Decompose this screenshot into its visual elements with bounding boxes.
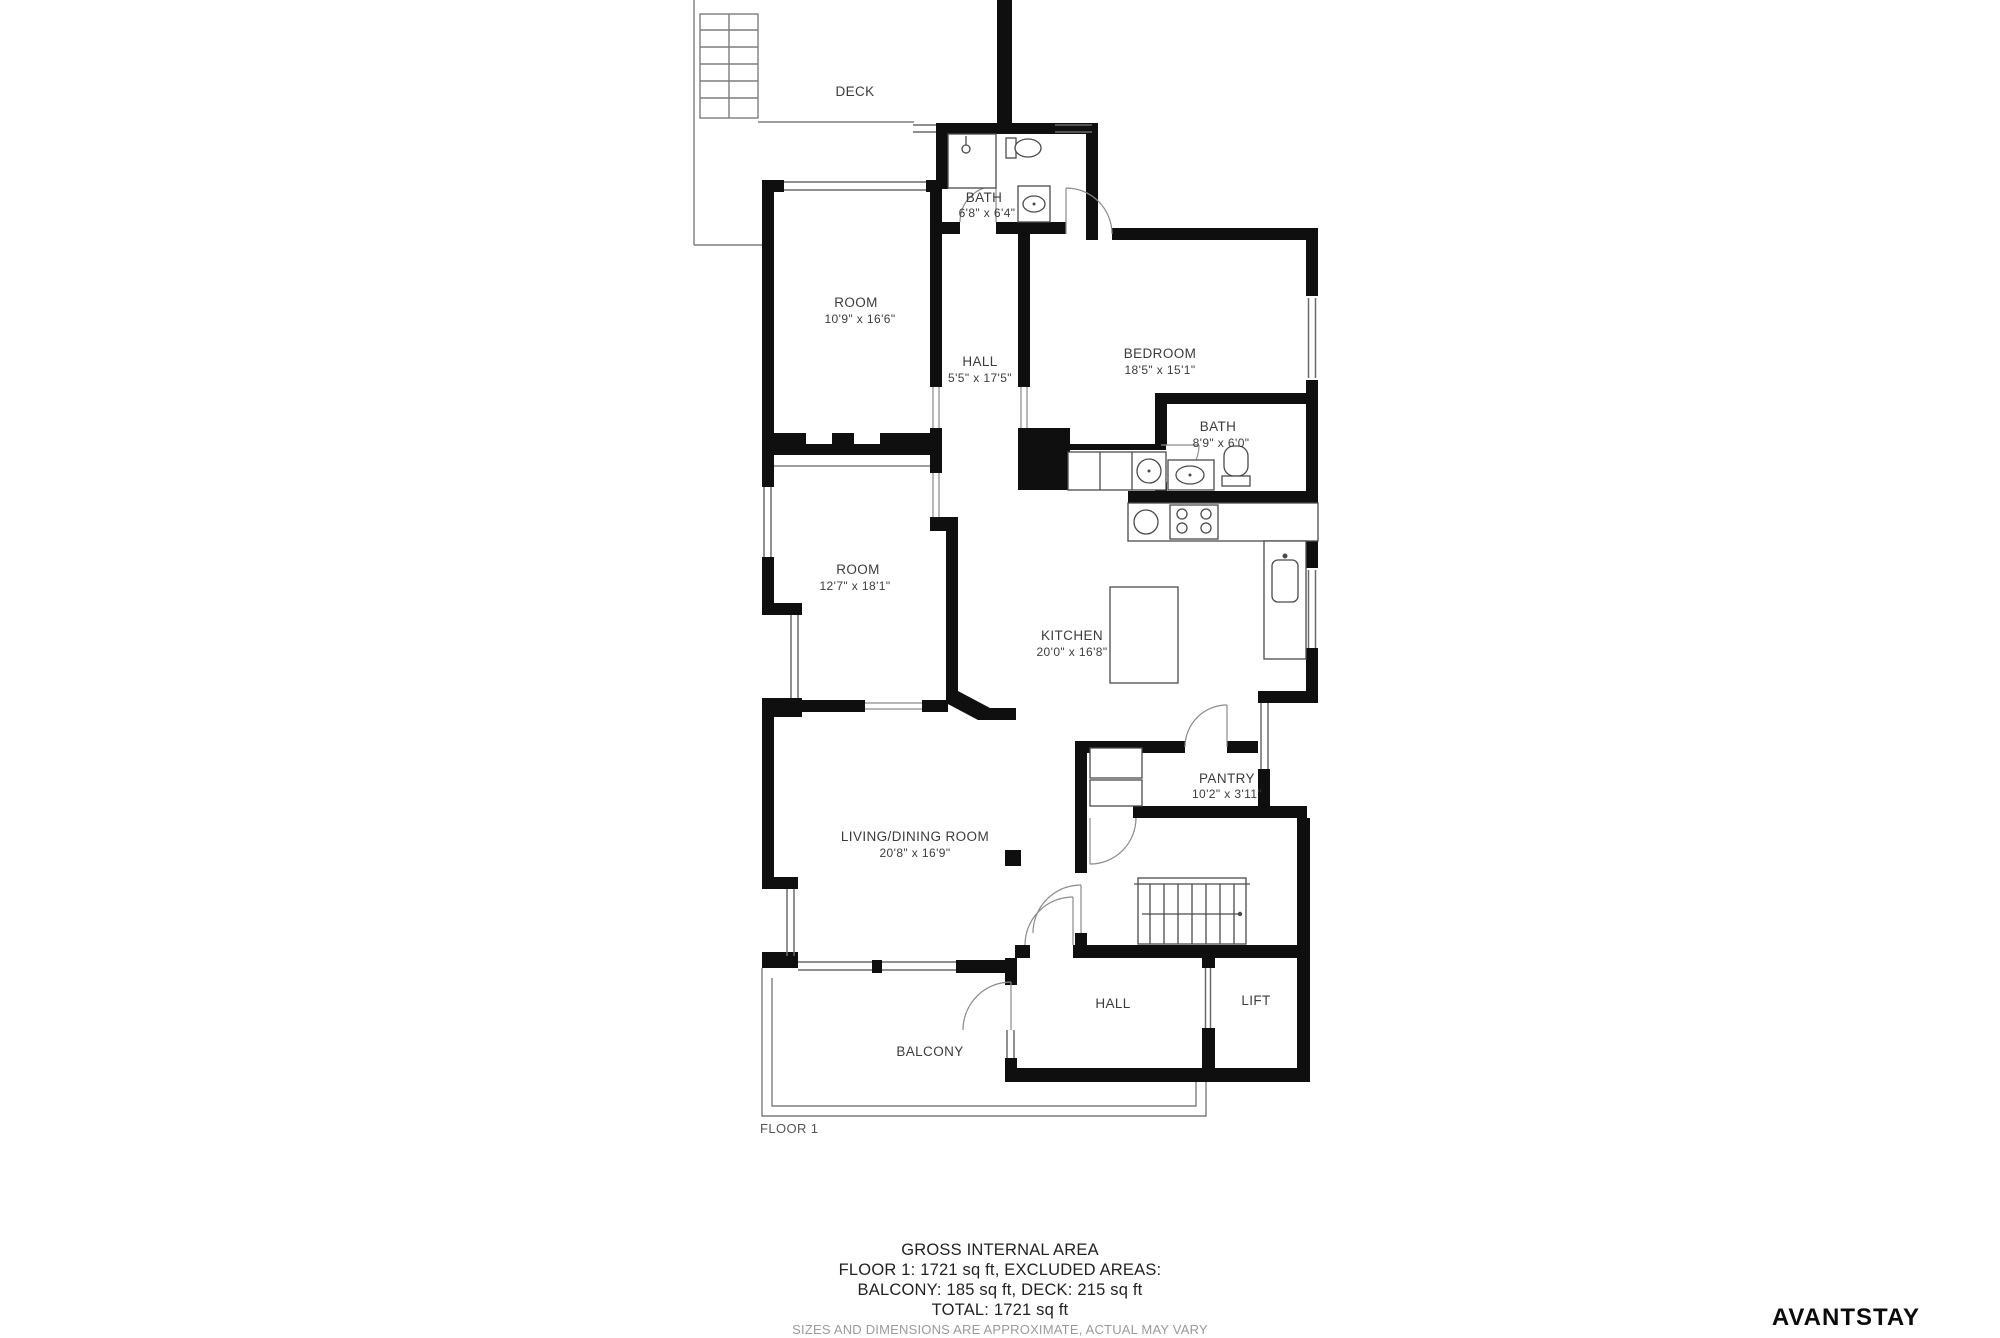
window-room2-bay xyxy=(791,615,798,698)
window-room2-left xyxy=(764,487,771,557)
deck-stairs-icon xyxy=(700,14,758,118)
dims-bath2: 8'9" x 6'0" xyxy=(1193,436,1250,450)
label-bath1: BATH xyxy=(966,190,1003,205)
door-stairhall-living xyxy=(1033,885,1081,933)
floor-plan-svg: DECK BATH 6'8" x 6'4" ROOM 10'9" x 16'6"… xyxy=(0,0,2000,1333)
shower-icon xyxy=(948,134,996,188)
fixtures-layer xyxy=(948,134,1318,944)
label-bedroom: BEDROOM xyxy=(1124,346,1197,361)
label-hall2: HALL xyxy=(1095,996,1130,1011)
window-hall2-left xyxy=(1007,1030,1014,1058)
bath2-sink-icon xyxy=(1168,460,1214,490)
avantstay-logo: AVANTSTAY xyxy=(1772,1305,1920,1331)
floor-label: FLOOR 1 xyxy=(760,1121,818,1136)
door-kitchen-stairhall xyxy=(1090,818,1136,864)
dims-hall1: 5'5" x 17'5" xyxy=(948,371,1012,385)
toilet-icon xyxy=(1006,138,1041,158)
stairs-icon xyxy=(1134,878,1250,944)
label-balcony: BALCONY xyxy=(896,1044,963,1059)
door-balcony xyxy=(963,982,1011,1030)
area-summary: GROSS INTERNAL AREA FLOOR 1: 1721 sq ft,… xyxy=(0,1240,2000,1337)
gross-internal-area-title: GROSS INTERNAL AREA xyxy=(0,1240,2000,1260)
sink-vanity-icon xyxy=(1018,186,1050,222)
bath2-toilet-icon xyxy=(1222,446,1250,486)
dims-room2: 12'7" x 18'1" xyxy=(819,579,890,593)
dims-bedroom: 18'5" x 15'1" xyxy=(1124,363,1195,377)
total-area-line: TOTAL: 1721 sq ft xyxy=(0,1300,2000,1320)
dims-bath1: 6'8" x 6'4" xyxy=(959,206,1016,220)
kitchen-sink-icon xyxy=(1264,541,1306,659)
label-hall1: HALL xyxy=(962,354,997,369)
kitchen-counter-top xyxy=(1068,452,1166,490)
label-deck: DECK xyxy=(835,84,874,99)
label-living: LIVING/DINING ROOM xyxy=(841,829,989,844)
label-bath2: BATH xyxy=(1200,419,1237,434)
dims-living: 20'8" x 16'9" xyxy=(879,846,950,860)
window-living-left xyxy=(787,889,794,956)
window-bedroom-right xyxy=(1306,296,1318,380)
window-room1-top xyxy=(784,182,926,190)
floor-plan: DECK BATH 6'8" x 6'4" ROOM 10'9" x 16'6"… xyxy=(0,0,2000,1333)
kitchen-island xyxy=(1110,587,1178,683)
deck-outline xyxy=(694,0,914,245)
dims-pantry: 10'2" x 3'11" xyxy=(1192,787,1262,801)
door-hall2 xyxy=(1025,897,1073,945)
label-lift: LIFT xyxy=(1241,993,1270,1008)
label-room2: ROOM xyxy=(836,562,880,577)
fridge-icon xyxy=(1090,748,1142,806)
dims-room1: 10'9" x 16'6" xyxy=(824,312,895,326)
floor1-area-line: FLOOR 1: 1721 sq ft, EXCLUDED AREAS: xyxy=(0,1260,2000,1280)
window-pantry-right xyxy=(1261,703,1268,769)
excluded-areas-line: BALCONY: 185 sq ft, DECK: 215 sq ft xyxy=(0,1280,2000,1300)
window-kitchen-right xyxy=(1309,570,1316,648)
lift-door xyxy=(1206,968,1211,1028)
label-room1: ROOM xyxy=(834,295,878,310)
label-kitchen: KITCHEN xyxy=(1041,628,1103,643)
door-pantry xyxy=(1185,705,1227,747)
dims-kitchen: 20'0" x 16'8" xyxy=(1036,645,1107,659)
stove-icon xyxy=(1128,503,1318,541)
label-pantry: PANTRY xyxy=(1199,771,1255,786)
disclaimer-text: SIZES AND DIMENSIONS ARE APPROXIMATE, AC… xyxy=(0,1323,2000,1337)
